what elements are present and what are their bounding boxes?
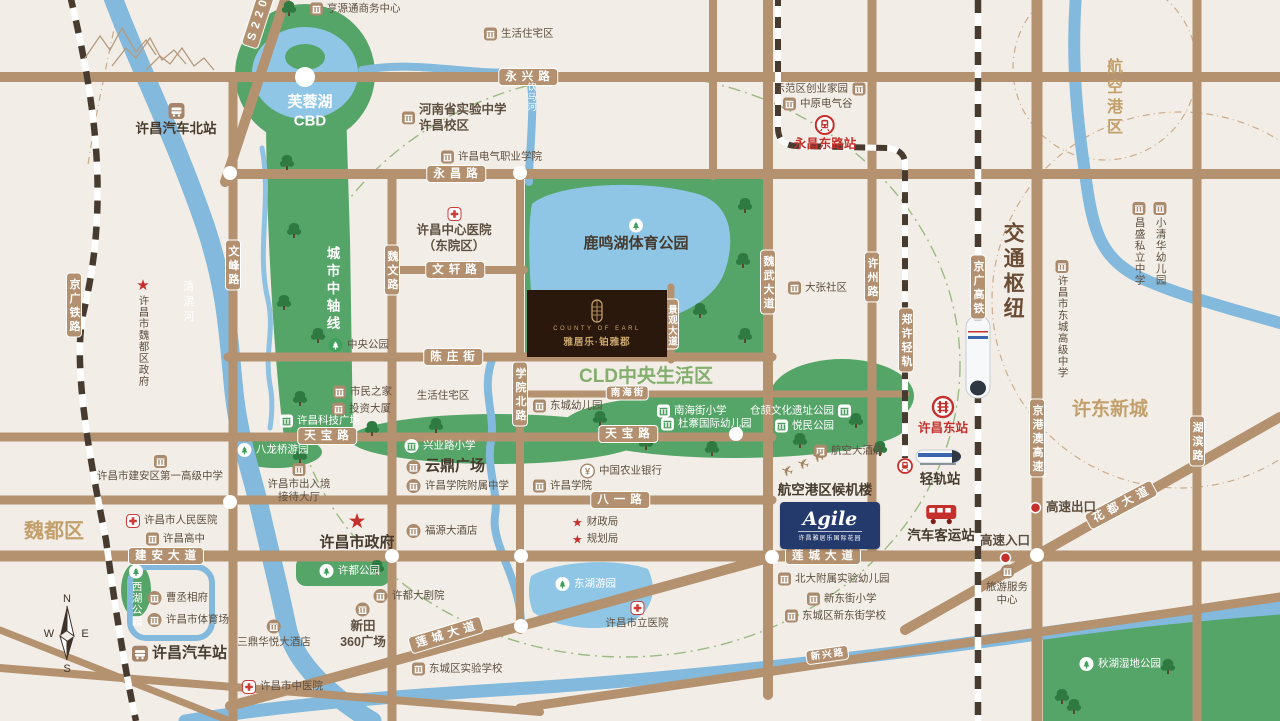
reddot-icon: [998, 551, 1011, 564]
xuchang-east-station: 许昌东站: [918, 395, 968, 437]
road-label-weiwu-avenue: 魏武大道: [760, 250, 776, 315]
bldgw-icon: [661, 418, 674, 431]
xihu-park: 西湖公园: [129, 564, 144, 627]
dongcheng-experimental-school: 东城区实验学校: [412, 662, 503, 675]
road-label-s220: S220: [241, 0, 276, 50]
bldgc-icon: [355, 602, 370, 617]
nanhai-street-primary: 南海街小学: [657, 404, 727, 417]
plane-2: ✈: [797, 455, 810, 473]
plane-icon: ✈: [781, 462, 794, 480]
qingyi-river-label: 清潩河: [180, 281, 194, 326]
road-label-jingguang-railway: 京广铁路: [66, 273, 82, 338]
airplane-icon: ✈: [809, 446, 827, 467]
central-china-electric-valley: 中原电气谷: [783, 97, 853, 110]
county-of-earl-emblem: [589, 299, 605, 323]
xudong-new-town-label: 许东新城: [1072, 398, 1148, 422]
dongcheng-xindong-school: 东城区新东街学校: [785, 609, 886, 622]
hosp-icon: [242, 680, 256, 694]
parkw-icon: [319, 564, 334, 579]
agile-sub: 许昌雅居乐国际花园: [798, 531, 861, 542]
bus-icon: [132, 646, 148, 662]
bldg-icon: [778, 573, 791, 586]
county-of-earl-project-card: COUNTY OF EARL 雅居乐·铂雅郡: [527, 290, 667, 357]
qiuhu-wetland-park: 秋湖湿地公园: [1079, 657, 1161, 672]
entry-exit-hall: 许昌市出入境接待大厅: [268, 463, 331, 504]
bldgc-icon: [406, 460, 421, 475]
tcm-hospital: 许昌市中医院: [242, 680, 323, 694]
bus-icon: [168, 103, 184, 119]
metro-icon: [815, 115, 835, 135]
railway-icon: [931, 395, 955, 419]
hengyuantong-business-center: 亨源通商务中心: [310, 2, 401, 15]
xuchang-high-school: 许昌高中: [146, 532, 205, 545]
transport-hub-label: 交通枢纽: [999, 222, 1025, 322]
xuchang-central-hospital: 许昌中心医院（东院区）: [416, 207, 491, 254]
yunding-plaza: 云鼎广场: [406, 458, 485, 477]
road-label-xuzhou-road: 许州路: [864, 252, 880, 303]
xudu-park: 许都公园: [319, 564, 380, 579]
demo-zone-startup-homes: 示范区创业家园: [775, 82, 866, 95]
bldg-icon: [402, 112, 415, 125]
peoples-hospital: 许昌市人民医院: [126, 514, 218, 528]
bank-icon: ¥: [580, 464, 595, 479]
road-label-jianan-avenue: 建安大道: [128, 547, 204, 565]
bldg-icon: [333, 386, 346, 399]
plane-icon: ✈: [797, 455, 810, 473]
dazhang-community: 大张社区: [788, 281, 847, 294]
road-label-xueyuan-north-road: 学院北路: [512, 362, 528, 427]
planning-bureau: ★规划局: [572, 532, 618, 545]
donghu-garden: 东湖游园: [555, 577, 616, 592]
bldg-icon: [310, 3, 323, 16]
agile-project-card: Agile 许昌雅居乐国际花园: [780, 502, 880, 549]
weidu-district-label: 魏都区: [24, 520, 84, 545]
pku-affiliated-kindergarten: 北大附属实验幼儿园: [778, 572, 890, 585]
xuchang-college: 许昌学院: [533, 479, 592, 492]
parkw-icon: [1079, 657, 1094, 672]
yongchang-east-road-station: 永昌东路站: [794, 115, 857, 153]
xintian-360-plaza: 新田360广场: [340, 602, 386, 650]
central-park: 中央公园: [328, 338, 389, 353]
airport-zone-label: 航空港区: [1102, 58, 1122, 138]
residential-area-north: 生活住宅区: [484, 27, 554, 40]
city-hospital: 许昌市立医院: [606, 601, 669, 630]
airplane-icon: ✈: [794, 453, 812, 474]
xingye-road-primary: 兴业路小学: [404, 439, 476, 454]
parkw-icon: [237, 443, 252, 458]
xuchang-city-government: ★许昌市政府: [319, 511, 394, 553]
xiaoqinghua-kindergarten: 小清华幼儿园: [1153, 202, 1166, 286]
road-label-chenzhuang-street: 陈庄街: [423, 348, 483, 366]
expressway-entry: 高速入口: [980, 533, 1030, 564]
map-labels-layer: 永兴路永昌路文轩路陈庄街南海街天宝路天宝路八一路建安大道莲城大道莲城大道新兴路花…: [0, 0, 1280, 721]
xuchang-bus-station: 许昌汽车站: [132, 645, 227, 664]
xuchang-location-map: N W E S 永兴路永昌路文轩路陈庄街南海街天宝路天宝路八一路建安大道莲城大道…: [0, 0, 1280, 721]
residential-area-mid: 生活住宅区: [417, 389, 470, 402]
bldgw-icon: [838, 405, 851, 418]
xuchang-college-affiliated-ms: 许昌学院附属中学: [406, 479, 509, 494]
bldgw-icon: [657, 405, 670, 418]
bldg-icon: [484, 28, 497, 41]
hosp-icon: [126, 514, 140, 528]
parkc-icon: [328, 338, 343, 353]
parkw-icon: [555, 577, 570, 592]
road-label-yongchang-road: 永昌路: [426, 165, 486, 183]
expressway-exit: 高速出口: [1029, 500, 1096, 516]
citizens-home: 市民之家: [333, 385, 392, 398]
duzhai-intl-kindergarten: 杜寨国际幼儿园: [661, 417, 752, 430]
furong-lake-cbd-label: 芙蓉湖CBD: [287, 93, 332, 131]
road-label-liancheng-avenue-e: 莲城大道: [785, 547, 861, 565]
xindong-street-primary: 新东街小学: [807, 592, 877, 605]
lrt-station-marker: [897, 458, 913, 474]
bldg-icon: [785, 610, 798, 623]
xuchang-north-bus-station: 许昌汽车北站: [136, 103, 217, 138]
bldgw-icon: [280, 415, 293, 428]
road-label-weiwen-road: 魏文路: [384, 245, 400, 296]
henan-experimental-school: 河南省实验中学许昌校区: [402, 102, 507, 133]
road-label-jinggang-ao-expressway: 京港澳高速: [1029, 399, 1045, 478]
hosp-icon: [447, 207, 461, 221]
bldgc-icon: [267, 619, 282, 634]
road-label-jingguang-hsr: 京广高铁: [970, 255, 986, 320]
keji-plaza: 许昌科技广场: [280, 414, 360, 427]
hosp-icon: [630, 601, 644, 615]
road-label-hubin-road: 湖滨路: [1189, 416, 1205, 467]
luminghu-sports-park: 鹿鸣湖体育公园: [583, 218, 688, 254]
cld-central-living-label: CLD中央生活区: [579, 365, 713, 389]
road-label-xinxing-road: 新兴路: [805, 645, 849, 666]
star-icon: ★: [136, 278, 149, 293]
bldg-icon: [146, 533, 159, 546]
road-label-bayi-road: 八一路: [590, 491, 650, 509]
tourist-service-center: 旅游服务中心: [986, 564, 1028, 607]
bldgc-icon: [147, 613, 162, 628]
starsm-icon: ★: [572, 516, 583, 528]
bldg-icon: [807, 593, 820, 606]
city-axis-label: 城市中轴线: [323, 246, 340, 334]
plane-3: ✈: [812, 448, 825, 466]
bldgc-icon: [406, 479, 421, 494]
airplane-icon: ✈: [778, 460, 796, 481]
road-label-wenxuan-road: 文轩路: [425, 261, 485, 279]
sanding-huayue-hotel: 三鼎华悦大酒店: [237, 619, 311, 649]
bldgc-icon: [147, 591, 162, 606]
agricultural-bank: ¥中国农业银行: [580, 464, 662, 479]
svg-text:¥: ¥: [585, 467, 590, 477]
lrt-station: 轻轨站: [920, 472, 961, 489]
xuchang-stadium: 许昌市体育场: [147, 613, 229, 628]
bldg-icon: [441, 151, 454, 164]
dongcheng-kindergarten: 东城幼儿园: [533, 399, 603, 412]
parkw-icon: [628, 218, 643, 233]
balongqiao-garden: 八龙桥游园: [237, 443, 309, 458]
road-label-tianbao-road-e: 天宝路: [598, 425, 658, 443]
reddot-icon: [1029, 502, 1042, 515]
bldg-icon: [154, 455, 167, 468]
fuyuan-hotel: 福源大酒店: [406, 524, 478, 539]
cangjie-culture-park: 仓颉文化遗址公园: [750, 404, 851, 417]
bldg-icon: [533, 400, 546, 413]
bldg-icon: [783, 98, 796, 111]
project-name-cn: 雅居乐·铂雅郡: [563, 334, 630, 348]
coach-station: 汽车客运站: [907, 503, 975, 545]
project-name-en: COUNTY OF EARL: [553, 326, 641, 332]
bldg-icon: [293, 463, 306, 476]
metrosm-icon: [897, 458, 913, 474]
jianan-no1-high: 许昌市建安区第一高级中学: [97, 455, 223, 483]
finance-bureau: ★财政局: [572, 515, 618, 528]
bldgc-icon: [406, 524, 421, 539]
road-label-liancheng-avenue-sw: 莲城大道: [407, 615, 485, 654]
road-label-zhengxu-lrt: 郑许轻轨: [898, 308, 914, 373]
changsheng-private-school: 昌盛私立中学: [1132, 202, 1145, 286]
schoolw-icon: [404, 439, 419, 454]
road-label-wenfeng-road: 文峰路: [225, 240, 241, 291]
bldgw-icon: [775, 420, 788, 433]
starlg-icon: ★: [348, 511, 367, 532]
plane-icon: ✈: [812, 448, 825, 466]
cao-mansion: 曹丞相府: [147, 591, 208, 606]
bldg-icon: [412, 663, 425, 676]
bldg-icon: [1056, 260, 1069, 273]
yuemin-park: 悦民公园: [775, 419, 834, 432]
weidu-district-government: ★许昌市魏都区政府: [136, 278, 149, 387]
bldg-icon: [533, 480, 546, 493]
airport-terminal: 航空港区候机楼: [778, 483, 873, 500]
xuchang-electric-college: 许昌电气职业学院: [441, 150, 542, 163]
yinma-river-label: 饮马河: [525, 82, 536, 112]
bldg-icon: [788, 282, 801, 295]
parkw-icon: [129, 564, 144, 579]
bldgc-icon: [1000, 564, 1015, 579]
bldg-icon: [1154, 202, 1167, 215]
plane-1: ✈: [781, 462, 794, 480]
redbus-icon: [925, 503, 957, 526]
dongcheng-senior-high: 许昌市东城高级中学: [1055, 260, 1068, 379]
bldg-icon: [852, 83, 865, 96]
agile-brand: Agile: [803, 510, 858, 529]
starsm-icon: ★: [572, 533, 583, 545]
bldg-icon: [1133, 202, 1146, 215]
